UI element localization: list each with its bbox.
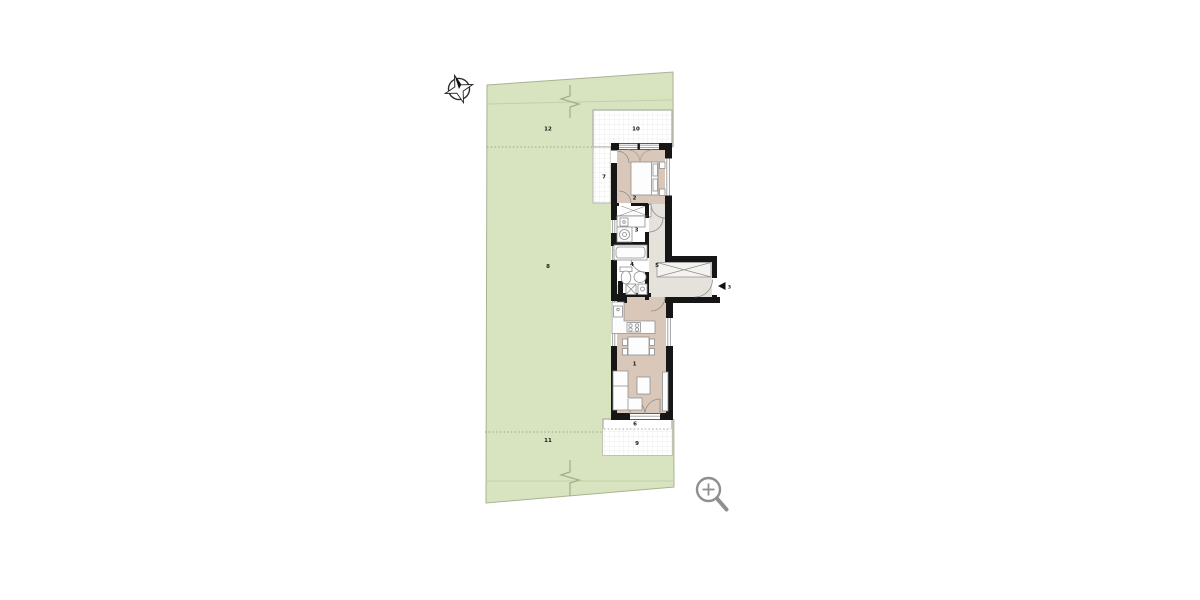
tv-cabinet [663, 372, 669, 411]
area-label-garden-north: 12 [544, 127, 552, 133]
chair [623, 349, 628, 356]
zoom-icon[interactable] [697, 478, 727, 510]
plan-canvas: 3 1 2 3 4 5 6 7 8 9 10 11 12 [0, 0, 1200, 600]
partition-laundry-bath [611, 242, 649, 245]
area-label-walkway: 7 [602, 175, 606, 181]
chair [650, 349, 655, 356]
corridor-wall-bottom [665, 297, 720, 303]
chair [650, 339, 655, 346]
area-label-garden-main: 8 [546, 264, 550, 270]
room-label-bathroom: 4 [630, 262, 634, 268]
nightstand [660, 162, 666, 169]
area-label-terrace-south: 6 [633, 422, 637, 428]
area-label-patio-south: 9 [635, 441, 639, 447]
room-label-laundry: 3 [635, 228, 639, 234]
corridor-wall-top [665, 256, 717, 262]
pillow [653, 164, 658, 176]
appliance [638, 284, 647, 295]
nightstand [660, 189, 666, 196]
area-label-terrace-north: 10 [632, 127, 640, 133]
bath-sink [634, 272, 646, 283]
toilet [621, 271, 631, 284]
floor-plan-svg: 3 1 2 3 4 5 6 7 8 9 10 11 12 [0, 0, 1200, 600]
room-label-bedroom: 2 [633, 196, 637, 202]
area-label-garden-south: 11 [544, 438, 552, 444]
pillow [653, 179, 658, 191]
compass-icon [441, 71, 478, 108]
dining-table [628, 337, 649, 355]
room-label-hallway: 5 [655, 263, 659, 269]
entry-number: 3 [728, 285, 731, 291]
room-label-living: 1 [633, 362, 637, 368]
coffee-table [637, 377, 650, 394]
chair [623, 339, 628, 346]
